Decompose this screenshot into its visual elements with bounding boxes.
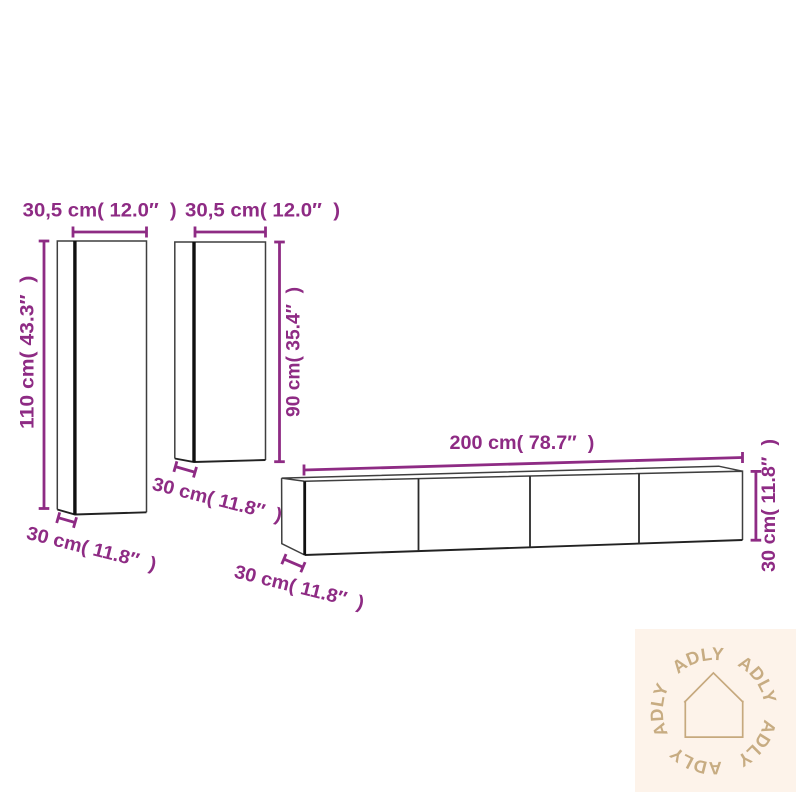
- svg-text:30 cm( 11.8″ ): 30 cm( 11.8″ ): [759, 439, 780, 572]
- svg-text:30,5 cm( 12.0″ ): 30,5 cm( 12.0″ ): [23, 201, 177, 222]
- svg-text:110 cm( 43.3″ ): 110 cm( 43.3″ ): [18, 276, 39, 429]
- svg-text:90 cm( 35.4″ ): 90 cm( 35.4″ ): [284, 287, 305, 417]
- svg-text:200 cm( 78.7″ ): 200 cm( 78.7″ ): [450, 433, 595, 454]
- svg-text:30,5 cm( 12.0″ ): 30,5 cm( 12.0″ ): [185, 201, 340, 222]
